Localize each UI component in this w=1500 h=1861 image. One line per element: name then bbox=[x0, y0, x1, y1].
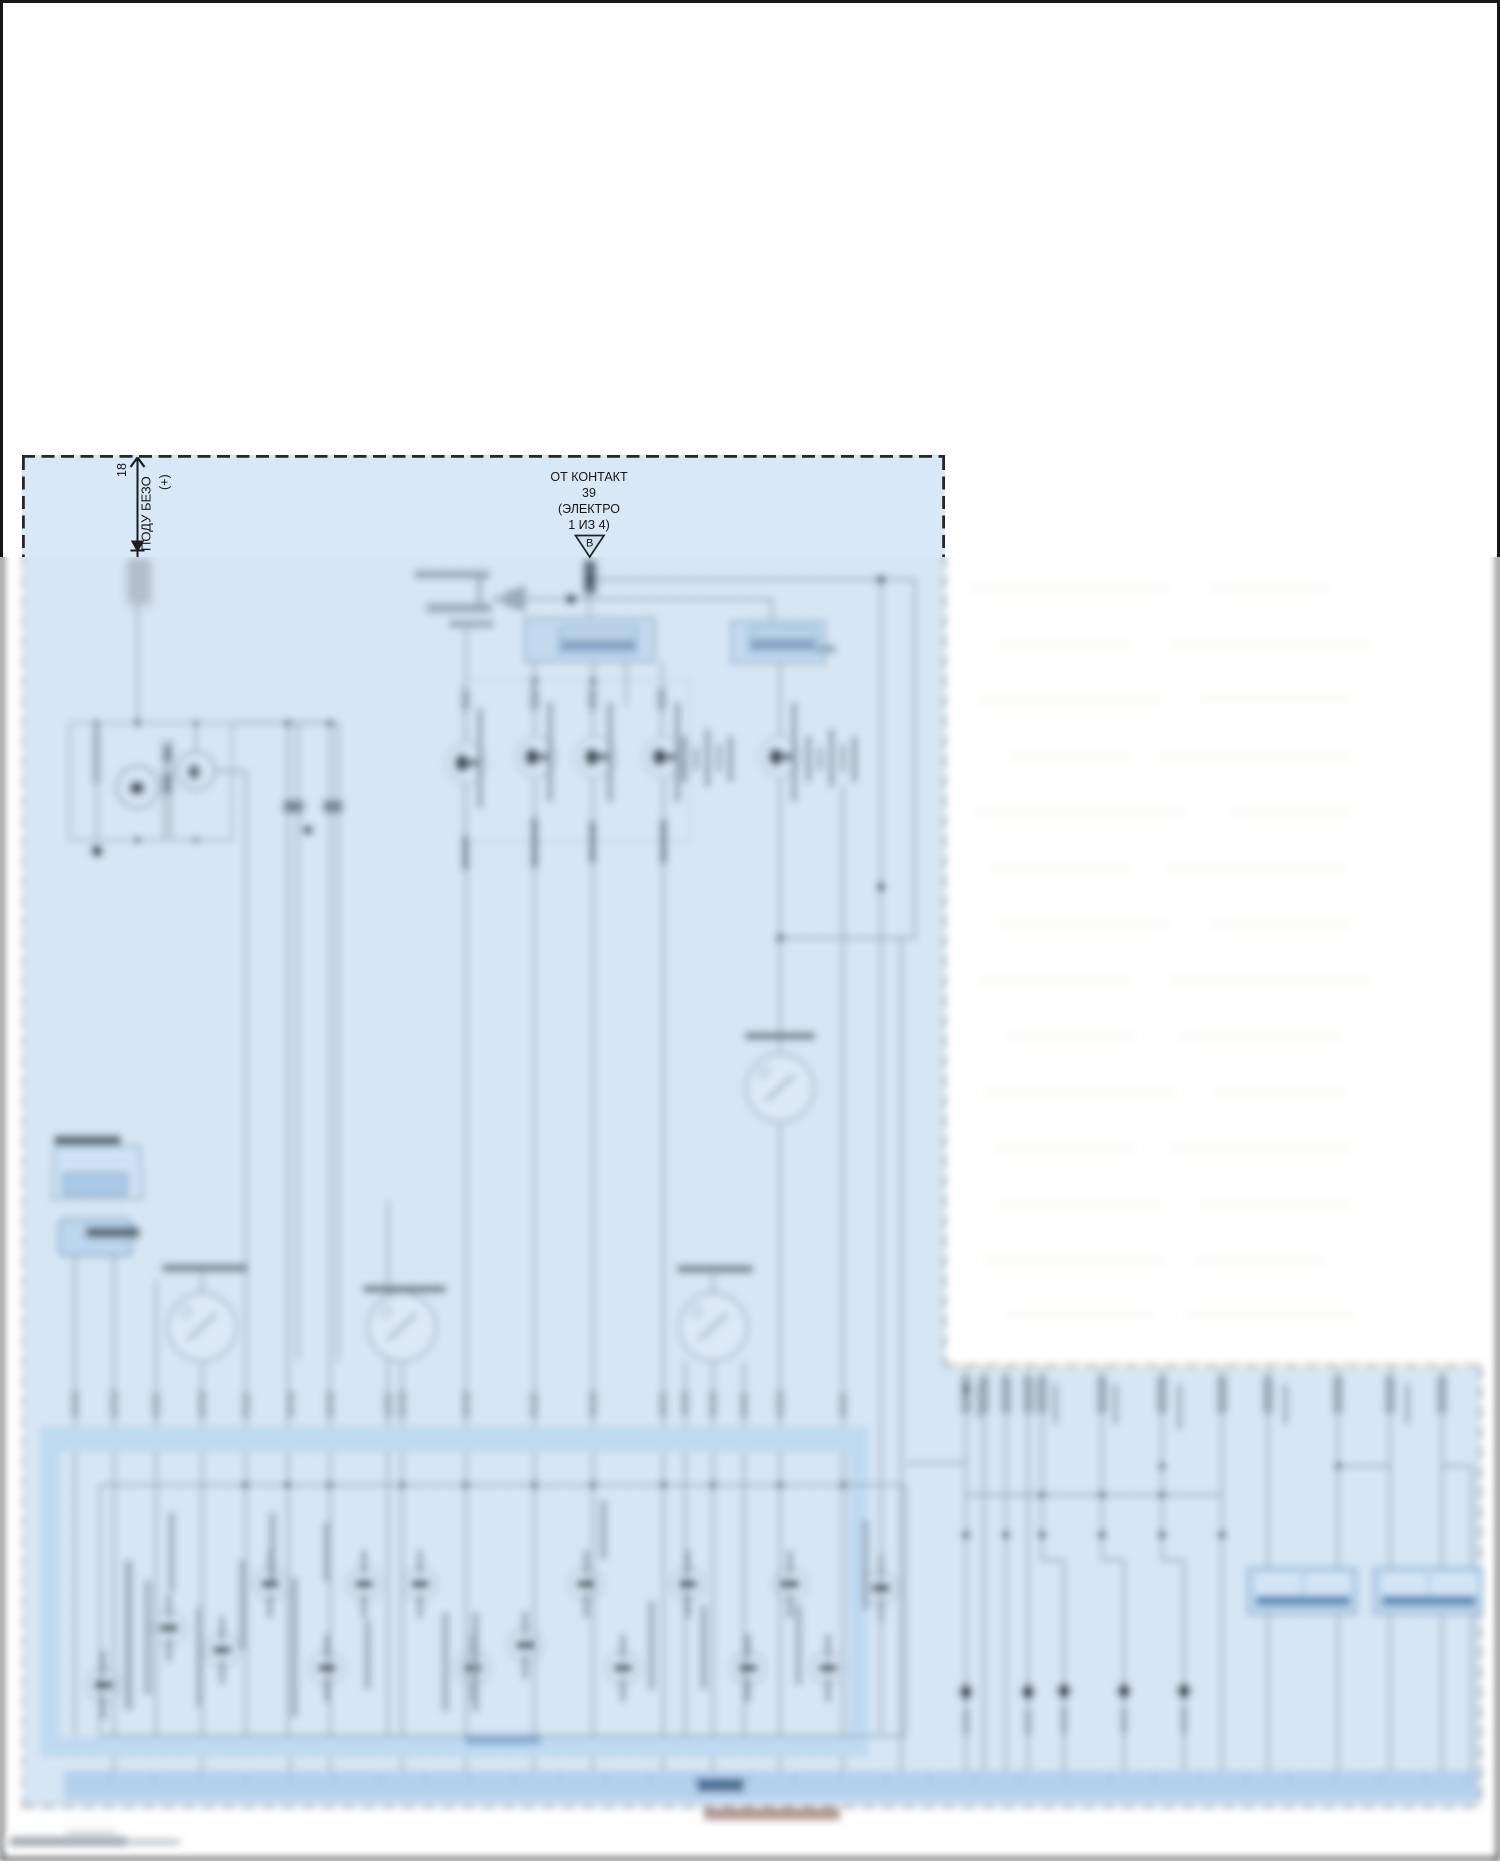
svg-text:ОТ КОНТАКТ: ОТ КОНТАКТ bbox=[550, 470, 628, 484]
svg-text:39: 39 bbox=[582, 486, 596, 500]
svg-text:1 ИЗ 4): 1 ИЗ 4) bbox=[568, 518, 610, 532]
svg-text:ПОДУ БЕЗО: ПОДУ БЕЗО bbox=[139, 476, 154, 551]
svg-text:(+): (+) bbox=[158, 474, 172, 490]
svg-text:B: B bbox=[586, 538, 593, 550]
svg-text:18: 18 bbox=[115, 463, 129, 477]
svg-text:(ЭЛЕКТРО: (ЭЛЕКТРО bbox=[558, 502, 620, 516]
